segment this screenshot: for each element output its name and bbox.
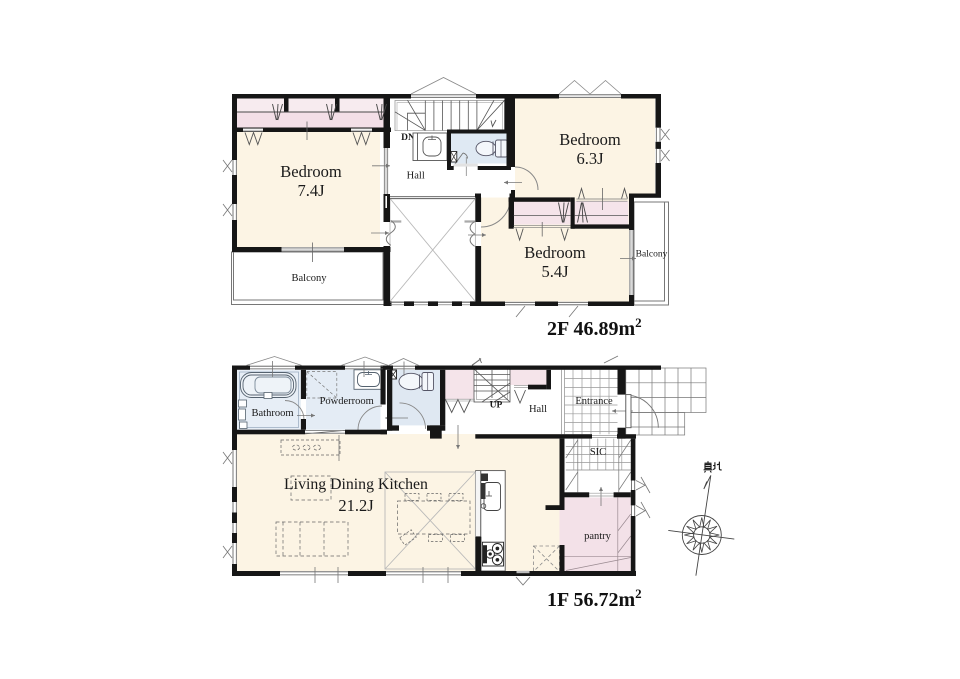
svg-text:Bedroom: Bedroom — [280, 162, 342, 181]
svg-text:UP: UP — [490, 401, 503, 411]
svg-text:Living Dining Kitchen: Living Dining Kitchen — [284, 476, 428, 493]
svg-text:21.2J: 21.2J — [338, 496, 374, 515]
svg-text:Hall: Hall — [529, 404, 547, 415]
svg-text:Powderroom: Powderroom — [320, 396, 374, 407]
svg-text:pantry: pantry — [584, 531, 612, 542]
svg-text:Bedroom: Bedroom — [524, 243, 586, 262]
svg-text:Hall: Hall — [407, 171, 425, 182]
svg-text:2F 46.89m2: 2F 46.89m2 — [547, 315, 642, 340]
svg-text:Entrance: Entrance — [575, 396, 613, 407]
svg-text:1F 56.72m2: 1F 56.72m2 — [547, 586, 642, 611]
svg-text:Balcony: Balcony — [636, 250, 668, 260]
svg-text:SIC: SIC — [590, 447, 606, 458]
svg-text:5.4J: 5.4J — [541, 262, 569, 281]
svg-text:Bathroom: Bathroom — [252, 408, 294, 419]
svg-text:6.3J: 6.3J — [576, 149, 604, 168]
svg-text:Bedroom: Bedroom — [559, 130, 621, 149]
svg-text:Balcony: Balcony — [292, 273, 328, 284]
svg-text:7.4J: 7.4J — [297, 181, 325, 200]
